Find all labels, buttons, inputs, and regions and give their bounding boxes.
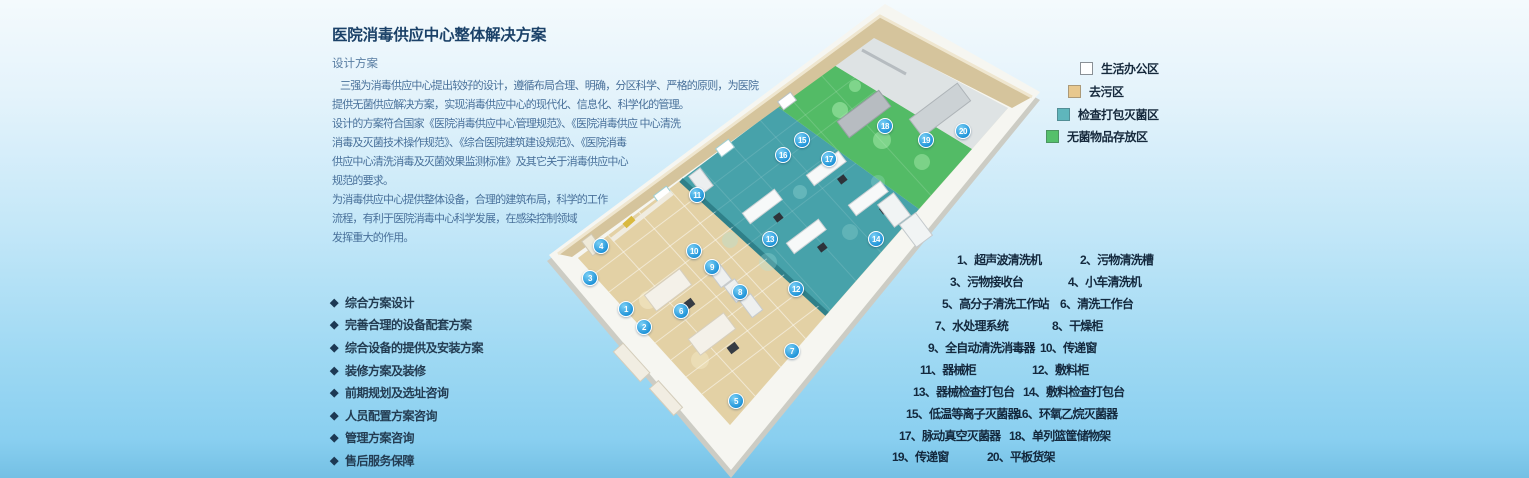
service-label: 管理方案咨询 [345,429,414,446]
floor-marker-5: 5 [728,393,744,409]
equipment-item: 4、小车清洗机 [1068,273,1141,290]
equipment-item: 8、干燥柜 [1052,317,1103,334]
floor-marker-17: 17 [821,151,837,167]
service-item: ◆售后服务保障 [330,449,483,472]
service-label: 装修方案及装修 [345,362,426,379]
intro-line: 流程，有利于医院消毒中心科学发展，在感染控制领域 [332,210,758,229]
diamond-bullet-icon: ◆ [330,431,338,444]
page-title: 医院消毒供应中心整体解决方案 [332,23,546,45]
service-item: ◆装修方案及装修 [330,359,483,382]
service-label: 综合方案设计 [345,294,414,311]
equipment-item: 5、高分子清洗工作站 [942,295,1049,312]
intro-line: 为消毒供应中心提供整体设备，合理的建筑布局，科学的工作 [332,191,758,210]
intro-line: 消毒及灭菌技术操作规范》、《综合医院建筑建设规范》、《医院消毒 [332,134,758,153]
floor-marker-19: 19 [918,132,934,148]
equipment-item: 11、器械柜 [920,361,976,378]
floor-marker-8: 8 [732,284,748,300]
service-item: ◆综合方案设计 [330,291,483,314]
equipment-item: 14、敷料检查打包台 [1023,383,1124,400]
service-item: ◆综合设备的提供及安装方案 [330,336,483,359]
service-label: 完善合理的设备配套方案 [345,316,472,333]
floor-marker-15: 15 [794,132,810,148]
diamond-bullet-icon: ◆ [330,454,338,467]
equipment-item: 3、污物接收台 [950,273,1023,290]
legend-label: 去污区 [1089,83,1124,100]
service-label: 售后服务保障 [345,452,414,469]
floor-marker-2: 2 [636,319,652,335]
legend-label: 生活办公区 [1101,60,1159,77]
equipment-item: 6、清洗工作台 [1060,295,1133,312]
page-subtitle: 设计方案 [332,55,378,71]
equipment-item: 10、传递窗 [1040,339,1097,356]
equipment-item: 19、传递窗 [892,448,949,465]
equipment-item: 15、低温等离子灭菌器 [906,405,1019,422]
diamond-bullet-icon: ◆ [330,409,338,422]
intro-line: 三强为消毒供应中心提出较好的设计，遵循布局合理、明确，分区科学、严格的原则，为医… [332,77,758,96]
diamond-bullet-icon: ◆ [330,318,338,331]
floor-marker-20: 20 [955,123,971,139]
legend-item-dirty: 去污区 [1068,83,1124,100]
intro-line: 规范的要求。 [332,172,758,191]
equipment-item: 1、超声波清洗机 [957,251,1041,268]
service-item: ◆人员配置方案咨询 [330,404,483,427]
equipment-item: 16、环氧乙烷灭菌器 [1016,405,1117,422]
legend-item-storage: 无菌物品存放区 [1046,128,1148,145]
equipment-item: 18、单列篮筐储物架 [1009,427,1110,444]
diamond-bullet-icon: ◆ [330,364,338,377]
legend-swatch-sterilize [1057,108,1070,121]
equipment-item: 9、全自动清洗消毒器 [928,339,1035,356]
service-list: ◆综合方案设计 ◆完善合理的设备配套方案 ◆综合设备的提供及安装方案 ◆装修方案… [330,291,483,472]
diamond-bullet-icon: ◆ [330,386,338,399]
service-label: 人员配置方案咨询 [345,407,437,424]
floor-marker-9: 9 [704,259,720,275]
intro-line: 提供无菌供应解决方案，实现消毒供应中心的现代化、信息化、科学化的管理。 [332,96,758,115]
legend-label: 无菌物品存放区 [1067,128,1148,145]
diamond-bullet-icon: ◆ [330,341,338,354]
solution-banner: 1 2 3 4 5 6 7 8 9 10 11 12 13 14 15 16 1… [0,0,1529,478]
legend-item-office: 生活办公区 [1080,60,1159,77]
floor-marker-7: 7 [784,343,800,359]
equipment-item: 12、敷料柜 [1032,361,1089,378]
floor-marker-6: 6 [673,303,689,319]
legend-swatch-office [1080,62,1093,75]
floor-marker-3: 3 [582,270,598,286]
floor-marker-14: 14 [868,231,884,247]
legend-label: 检查打包灭菌区 [1078,106,1159,123]
intro-line: 供应中心清洗消毒及灭菌效果监测标准》及其它关于消毒供应中心 [332,153,758,172]
service-item: ◆管理方案咨询 [330,427,483,450]
legend-swatch-dirty [1068,85,1081,98]
service-item: ◆前期规划及选址咨询 [330,381,483,404]
equipment-item: 2、污物清洗槽 [1080,251,1153,268]
equipment-item: 17、脉动真空灭菌器 [899,427,1000,444]
floor-marker-16: 16 [775,147,791,163]
service-label: 前期规划及选址咨询 [345,384,449,401]
floor-marker-18: 18 [877,118,893,134]
floor-marker-1: 1 [618,301,634,317]
equipment-item: 20、平板货架 [987,448,1055,465]
legend-swatch-storage [1046,130,1059,143]
service-label: 综合设备的提供及安装方案 [345,339,483,356]
equipment-item: 13、器械检查打包台 [913,383,1014,400]
service-item: ◆完善合理的设备配套方案 [330,314,483,337]
intro-line: 设计的方案符合国家《医院消毒供应中心管理规范》、《医院消毒供应 中心清洗 [332,115,758,134]
intro-paragraph: 三强为消毒供应中心提出较好的设计，遵循布局合理、明确，分区科学、严格的原则，为医… [332,77,758,248]
floor-marker-13: 13 [762,231,778,247]
legend-item-sterilize: 检查打包灭菌区 [1057,106,1159,123]
intro-line: 发挥重大的作用。 [332,229,758,248]
floor-marker-12: 12 [788,281,804,297]
diamond-bullet-icon: ◆ [330,296,338,309]
equipment-item: 7、水处理系统 [935,317,1008,334]
